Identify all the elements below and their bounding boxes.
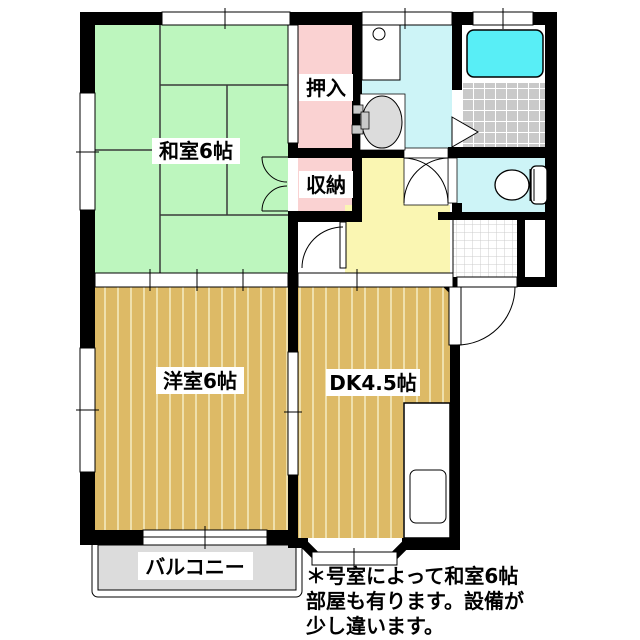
hall-dk-sliding-door [298,273,453,287]
room-floors [92,25,545,597]
bathtub [467,30,543,77]
washroom-top-window [362,12,452,25]
oshiire-label: 押入 [306,76,346,100]
youshitsu-room-area [95,287,288,530]
washitsu-label: 和室6帖 [159,139,233,163]
footnote: ＊号室によって和室6帖 部屋も有ります。設備が 少し違います。 [305,564,524,638]
balcony-label: バルコニー [145,555,245,579]
youshitsu-dk-sliding-door [288,352,298,475]
entry-door-opening [457,277,517,287]
shuunou-label: 収納 [306,173,346,197]
kitchen-sink [410,470,446,523]
floor-plan-drawing: 和室6帖 押入 収納 洋室6帖 DK4.5帖 バルコニー ＊号室によって和室6帖… [0,0,640,640]
note-line-1: ＊号室によって和室6帖 [306,564,518,588]
oshiire-fusuma-sliding-door [288,25,298,143]
washitsu-top-window [162,12,290,25]
dk-label: DK4.5帖 [329,371,417,395]
apartment-floor-plan: 和室6帖 押入 収納 洋室6帖 DK4.5帖 バルコニー ＊号室によって和室6帖… [0,0,640,640]
hallway-upper-area [362,158,404,205]
toilet-door-opening [448,158,457,203]
entry-door-panel [449,287,461,345]
hall-corner-door-panel [340,222,346,268]
washroom-toilet-door-zone [404,158,448,205]
entry-door-arc [457,287,515,345]
note-line-3: 少し違います。 [305,614,444,638]
youshitsu-label: 洋室6帖 [163,369,237,393]
basin-faucet-spout [361,112,369,129]
note-line-2: 部屋も有ります。設備が [306,589,524,613]
hall-corner-door-arc [302,227,343,268]
bathroom-tile-floor [462,83,545,147]
entrance-genkan-tile [453,220,517,277]
washer-faucet-icon [373,28,385,40]
toilet-tank [531,166,547,204]
toilet-bowl [495,170,529,200]
washitsu-youshitsu-fusuma-partition [95,273,288,287]
washroom-door-opening [404,148,448,158]
